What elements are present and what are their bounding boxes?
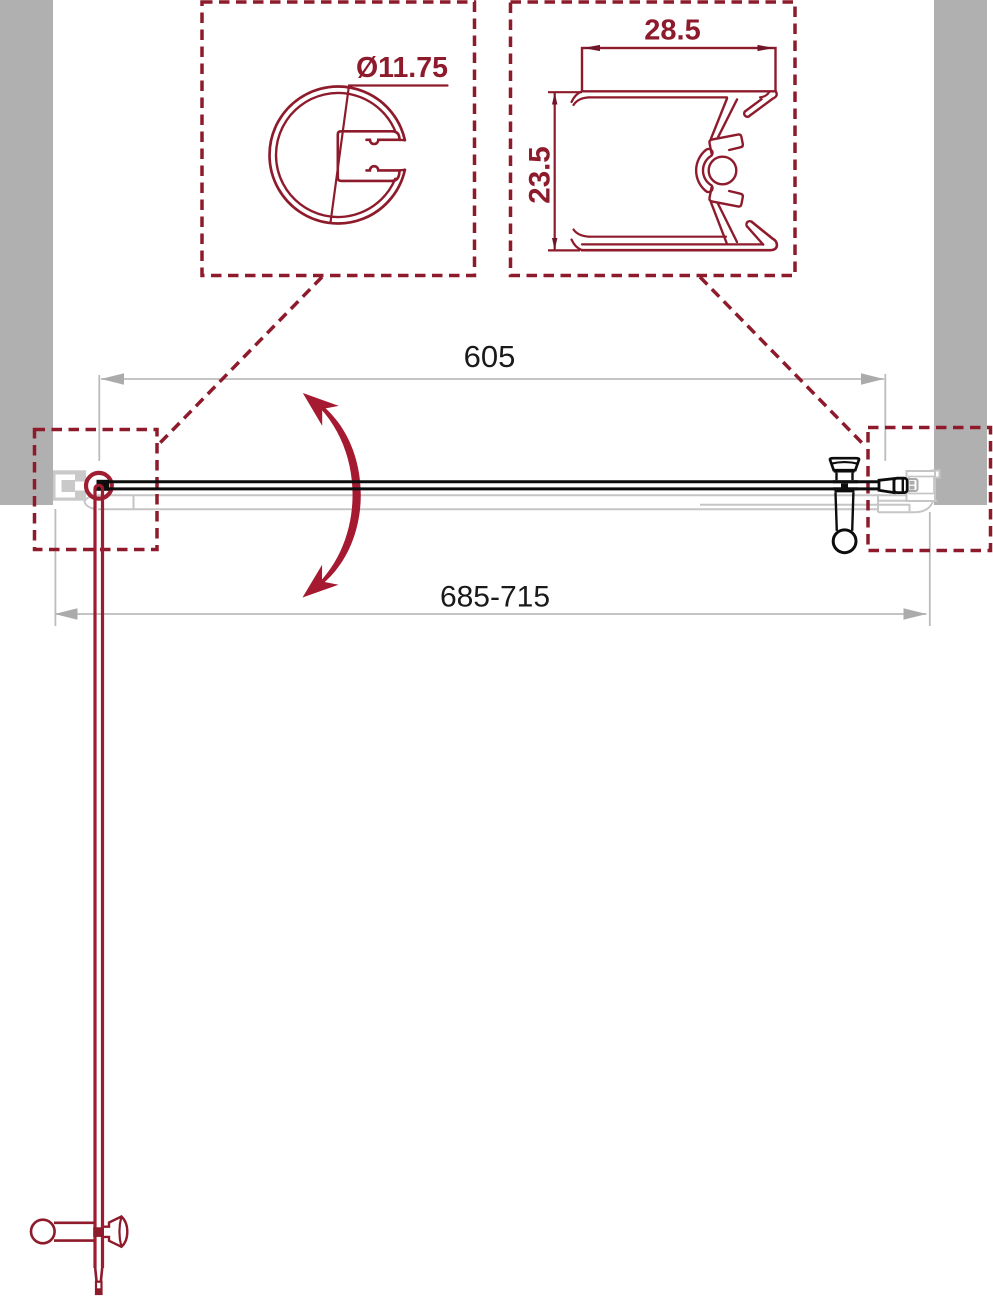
svg-text:23.5: 23.5 — [524, 146, 557, 203]
svg-text:28.5: 28.5 — [644, 15, 700, 47]
svg-text:Ø11.75: Ø11.75 — [356, 52, 448, 84]
svg-text:685-715: 685-715 — [440, 581, 550, 614]
svg-text:605: 605 — [464, 339, 516, 374]
